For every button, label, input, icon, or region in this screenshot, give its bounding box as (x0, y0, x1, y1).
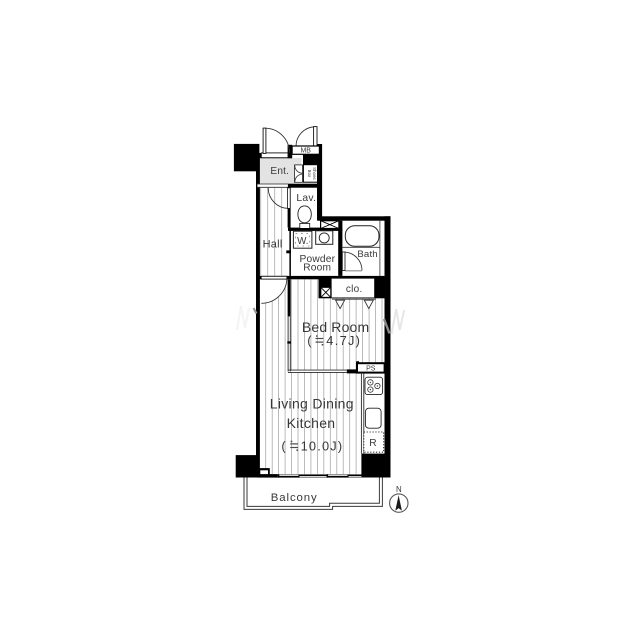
svg-text:4.7J): 4.7J) (326, 333, 361, 348)
svg-text:Bath: Bath (357, 249, 378, 260)
svg-text:W.: W. (297, 236, 308, 247)
svg-text:(: ( (281, 438, 286, 453)
svg-text:Room: Room (303, 263, 331, 274)
svg-text:Ent.: Ent. (270, 166, 289, 177)
svg-text:(: ( (307, 333, 312, 348)
svg-text:R: R (369, 438, 376, 449)
svg-text:10.0J): 10.0J) (301, 438, 344, 453)
svg-text:Living Dining: Living Dining (270, 395, 354, 411)
svg-text:Box: Box (307, 170, 312, 178)
svg-text:PS: PS (366, 365, 376, 372)
svg-text:Lav.: Lav. (296, 193, 316, 204)
svg-text:MB: MB (300, 148, 311, 155)
svg-text:Kitchen: Kitchen (287, 415, 336, 431)
svg-text:Hall: Hall (263, 238, 283, 250)
svg-text:clo.: clo. (346, 284, 363, 295)
svg-text:Balcony: Balcony (271, 492, 318, 504)
svg-text:N: N (396, 485, 402, 494)
